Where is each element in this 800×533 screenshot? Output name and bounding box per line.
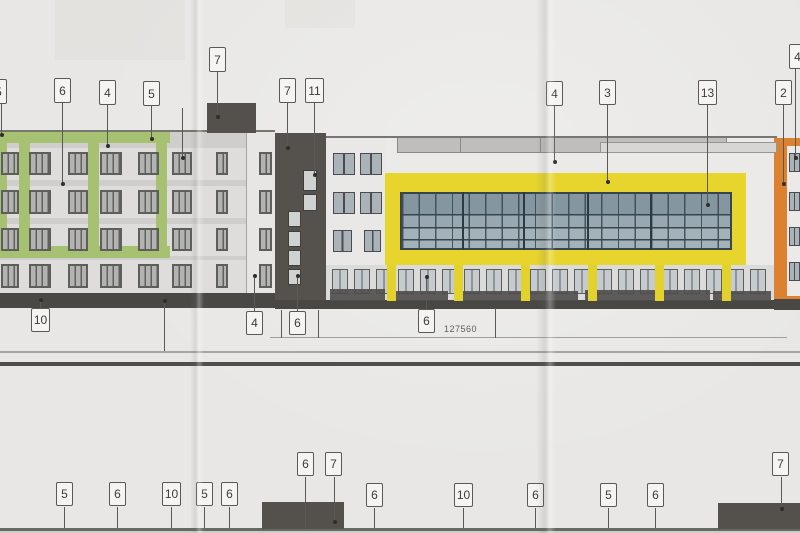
callout-4: 4 (789, 44, 800, 69)
callout-5: 5 (0, 79, 7, 104)
window (259, 264, 272, 288)
callout-10: 10 (454, 483, 473, 507)
window (216, 264, 228, 288)
callout-5: 5 (196, 482, 213, 506)
rooftop-box (207, 103, 256, 133)
callout-leader (607, 105, 608, 181)
callout-dot (313, 173, 317, 177)
callout-leader (608, 508, 609, 528)
window (1, 152, 19, 175)
callout-6: 6 (527, 483, 544, 507)
callout-6: 6 (54, 78, 71, 103)
window (29, 264, 51, 288)
callout-leader (1, 104, 2, 134)
callout-dot (706, 203, 710, 207)
callout-leader (151, 106, 152, 138)
ground-line-thick (0, 362, 800, 366)
window (1, 264, 19, 288)
callout-leader (374, 508, 375, 528)
callout-leader (217, 72, 218, 116)
window (100, 264, 122, 288)
reference-dot (163, 299, 167, 303)
window (138, 152, 159, 175)
window (29, 152, 51, 175)
yellow-column (588, 265, 597, 301)
callout-dot (333, 520, 337, 524)
reference-line (318, 310, 319, 338)
callout-dot (553, 160, 557, 164)
window (172, 190, 192, 214)
callout-leader (305, 477, 306, 529)
callout-leader (117, 507, 118, 528)
callout-leader (107, 105, 108, 145)
yellow-column (454, 265, 463, 301)
callout-10: 10 (162, 482, 181, 506)
railing-silhouette (396, 291, 448, 301)
green-accent-frame (88, 132, 99, 258)
rooftop-box (718, 503, 800, 529)
callout-leader (314, 103, 315, 174)
window (789, 262, 800, 281)
callout-13: 13 (698, 80, 717, 105)
callout-leader (297, 275, 298, 311)
callout-4: 4 (546, 81, 563, 106)
glass-curtain-wall (400, 192, 732, 250)
callout-dot (61, 182, 65, 186)
yellow-column (521, 265, 530, 301)
window (789, 192, 800, 211)
glass-mullion (587, 192, 589, 250)
callout-5: 5 (143, 81, 160, 106)
stair-window (303, 194, 317, 211)
window (138, 264, 159, 288)
callout-leader (229, 507, 230, 528)
roof-railing-inset (600, 142, 777, 153)
window (29, 190, 51, 214)
rooftop-box (262, 502, 344, 529)
callout-10: 10 (31, 308, 50, 332)
reference-dot (181, 156, 185, 160)
callout-4: 4 (99, 80, 116, 105)
callout-7: 7 (325, 452, 342, 476)
window (1, 190, 19, 214)
reference-line (281, 310, 282, 338)
callout-6: 6 (647, 483, 664, 507)
glass-mullion (462, 192, 464, 250)
ground-line-thin (0, 351, 800, 353)
callout-leader (426, 276, 427, 309)
callout-4: 4 (246, 311, 263, 335)
callout-leader (204, 507, 205, 528)
paper-faint-mark (285, 0, 355, 28)
window (364, 230, 381, 252)
callout-5: 5 (600, 483, 617, 507)
orange-building-base (774, 299, 800, 310)
window (138, 228, 159, 251)
callout-dot (253, 274, 257, 278)
callout-dot (782, 182, 786, 186)
railing-silhouette (460, 291, 578, 301)
callout-leader (334, 477, 335, 521)
callout-leader (62, 103, 63, 183)
window (138, 190, 159, 214)
callout-dot (794, 156, 798, 160)
stair-window (288, 211, 301, 227)
callout-dot (606, 180, 610, 184)
callout-leader (554, 106, 555, 161)
window (172, 264, 192, 288)
reference-line (164, 300, 165, 351)
window (68, 152, 88, 175)
callout-leader (463, 508, 464, 528)
window (68, 190, 88, 214)
ground-floor-base (275, 300, 777, 309)
yellow-column (722, 265, 731, 301)
window (100, 152, 122, 175)
callout-leader (171, 507, 172, 528)
reference-line (182, 108, 183, 157)
callout-dot (150, 137, 154, 141)
window (172, 228, 192, 251)
window (333, 153, 355, 175)
window (789, 227, 800, 246)
callout-leader (795, 69, 796, 157)
railing-silhouette (330, 289, 385, 301)
window (216, 228, 228, 251)
window (333, 230, 352, 252)
callout-leader (783, 105, 784, 183)
yellow-column (655, 265, 664, 301)
callout-dot (39, 298, 43, 302)
callout-dot (296, 274, 300, 278)
stair-window (288, 231, 301, 247)
window (360, 153, 382, 175)
window (100, 228, 122, 251)
dimension-label: 127560 (444, 324, 477, 334)
railing-silhouette (585, 290, 710, 301)
stage: 127560 564577114313241046667561056610656… (0, 0, 800, 533)
window (100, 190, 122, 214)
window (360, 192, 382, 214)
window (68, 264, 88, 288)
window (68, 228, 88, 251)
callout-leader (535, 508, 536, 528)
callout-leader (707, 105, 708, 204)
reference-line (495, 308, 496, 338)
callout-6: 6 (297, 452, 314, 476)
callout-6: 6 (109, 482, 126, 506)
window (1, 228, 19, 251)
callout-dot (216, 115, 220, 119)
callout-leader (781, 477, 782, 508)
window (216, 152, 228, 175)
callout-3: 3 (599, 80, 616, 105)
callout-7: 7 (772, 452, 789, 476)
glass-mullion (523, 192, 525, 250)
paper-faint-mark (55, 0, 185, 60)
rail-divider (540, 138, 541, 152)
callout-6: 6 (418, 309, 435, 333)
callout-dot (0, 133, 4, 137)
window (259, 152, 272, 175)
window (333, 192, 355, 214)
callout-7: 7 (279, 78, 296, 103)
callout-5: 5 (56, 482, 73, 506)
lower-elevation-roofline (0, 528, 800, 531)
school-roof-line (326, 136, 777, 138)
callout-6: 6 (289, 311, 306, 335)
callout-2: 2 (775, 80, 792, 105)
callout-dot (106, 144, 110, 148)
yellow-column (387, 265, 396, 301)
rail-divider (460, 138, 461, 152)
callout-dot (780, 507, 784, 511)
callout-leader (254, 275, 255, 311)
window (259, 228, 272, 251)
callout-leader (287, 103, 288, 147)
glass-mullion (650, 192, 652, 250)
window (29, 228, 51, 251)
stair-window (288, 250, 301, 266)
window (259, 190, 272, 214)
callout-6: 6 (221, 482, 238, 506)
window (216, 190, 228, 214)
callout-leader (655, 508, 656, 528)
callout-6: 6 (366, 483, 383, 507)
callout-leader (64, 507, 65, 528)
callout-dot (425, 275, 429, 279)
callout-dot (286, 146, 290, 150)
callout-11: 11 (305, 78, 324, 103)
dimension-line (270, 337, 787, 338)
callout-7: 7 (209, 47, 226, 72)
